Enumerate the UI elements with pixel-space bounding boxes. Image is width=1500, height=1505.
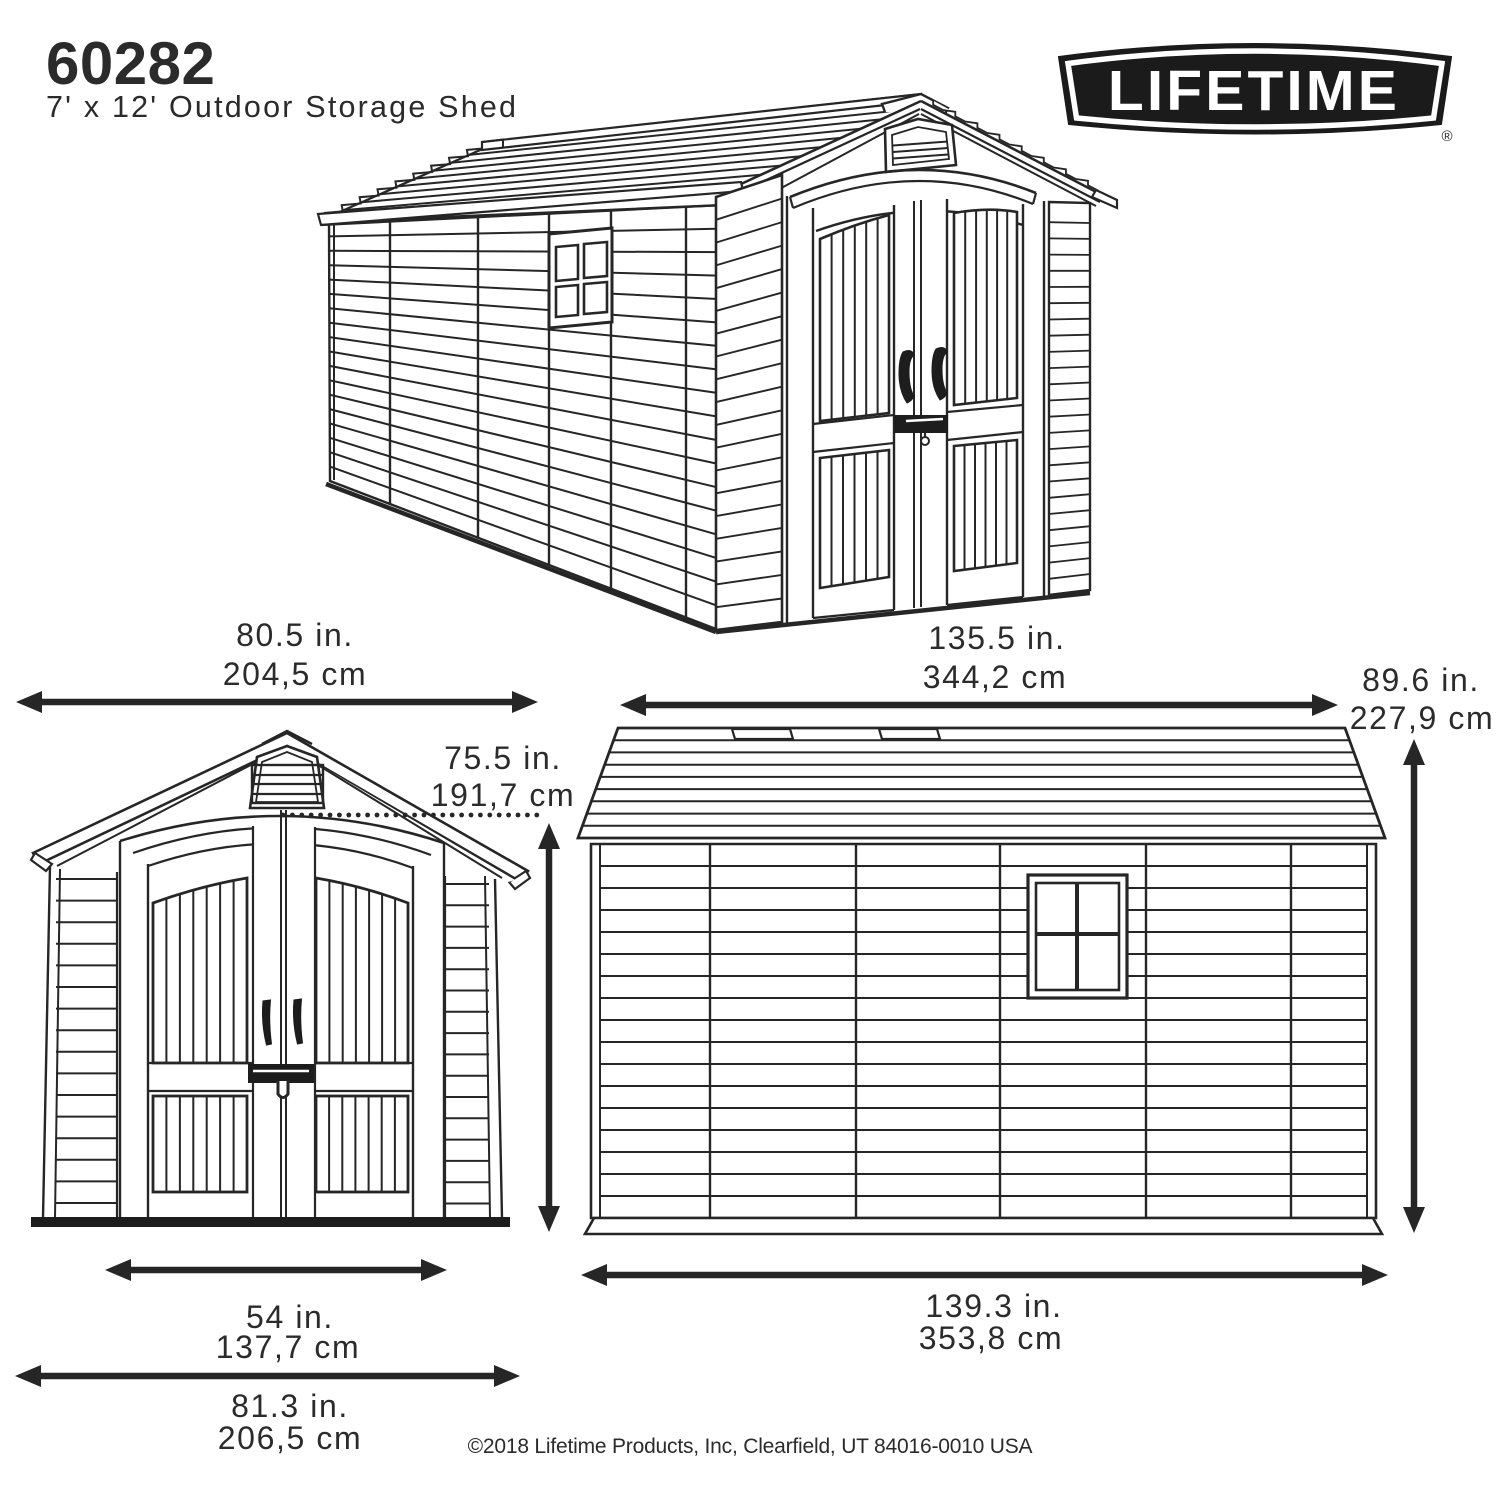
svg-text:60282: 60282 (46, 30, 215, 97)
svg-text:137,7 cm: 137,7 cm (216, 1329, 360, 1365)
svg-text:89.6 in.: 89.6 in. (1362, 662, 1480, 698)
svg-text:®: ® (1441, 128, 1452, 145)
svg-text:81.3 in.: 81.3 in. (231, 1388, 349, 1424)
svg-text:75.5 in.: 75.5 in. (444, 740, 562, 776)
svg-text:80.5 in.: 80.5 in. (236, 617, 354, 653)
svg-text:227,9 cm: 227,9 cm (1350, 700, 1494, 736)
svg-text:191,7 cm: 191,7 cm (431, 777, 575, 813)
svg-text:139.3 in.: 139.3 in. (925, 1288, 1062, 1324)
svg-text:204,5 cm: 204,5 cm (223, 656, 367, 692)
svg-text:344,2 cm: 344,2 cm (923, 659, 1067, 695)
svg-text:353,8 cm: 353,8 cm (919, 1320, 1063, 1356)
svg-text:7' x 12' Outdoor Storage Shed: 7' x 12' Outdoor Storage Shed (46, 90, 518, 124)
svg-text:206,5 cm: 206,5 cm (218, 1420, 362, 1456)
svg-text:©2018 Lifetime Products, Inc,: ©2018 Lifetime Products, Inc, Clearfield… (468, 1435, 1033, 1458)
svg-text:135.5 in.: 135.5 in. (928, 620, 1065, 656)
svg-text:LIFETIME: LIFETIME (1108, 60, 1400, 123)
